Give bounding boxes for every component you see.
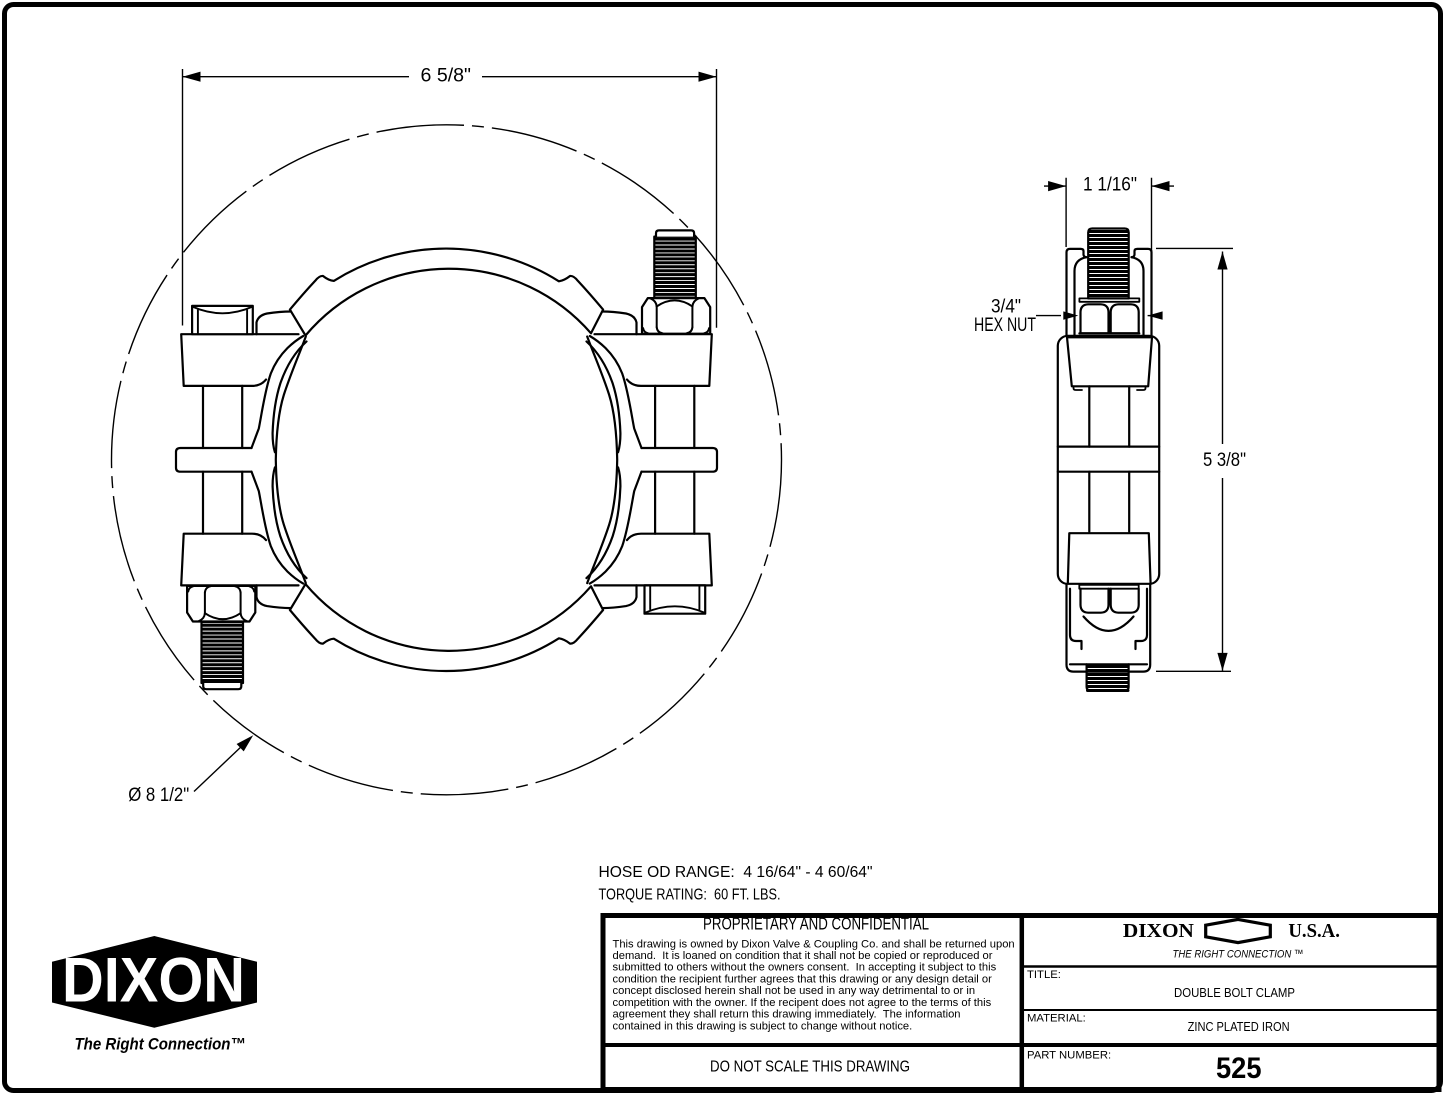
svg-text:DO NOT SCALE THIS DRAWING: DO NOT SCALE THIS DRAWING [710, 1059, 910, 1076]
svg-text:PART NUMBER:: PART NUMBER: [1027, 1050, 1111, 1062]
svg-text:demand. It is loaned on condi: demand. It is loaned on condition that i… [613, 950, 993, 962]
svg-text:DOUBLE BOLT CLAMP: DOUBLE BOLT CLAMP [1174, 985, 1295, 1000]
svg-text:5 3/8": 5 3/8" [1203, 450, 1246, 471]
svg-text:submitted to others without th: submitted to others without the owners c… [613, 962, 997, 974]
svg-text:DIXON: DIXON [62, 946, 245, 1016]
svg-text:6 5/8": 6 5/8" [421, 66, 472, 87]
svg-text:1 1/16": 1 1/16" [1083, 175, 1137, 196]
svg-text:THE RIGHT CONNECTION ™: THE RIGHT CONNECTION ™ [1173, 949, 1304, 961]
svg-text:ZINC PLATED IRON: ZINC PLATED IRON [1188, 1019, 1290, 1034]
svg-text:TITLE:: TITLE: [1027, 969, 1061, 981]
svg-text:The Right Connection™: The Right Connection™ [75, 1036, 246, 1054]
svg-text:DIXON: DIXON [1123, 920, 1194, 942]
svg-text:agreement they shall return th: agreement they shall return this drawing… [613, 1009, 961, 1021]
svg-text:This drawing is owned by Dixon: This drawing is owned by Dixon Valve & C… [613, 938, 1015, 950]
svg-text:HOSE OD RANGE: 4 16/64" - 4 6: HOSE OD RANGE: 4 16/64" - 4 60/64" [599, 864, 873, 881]
svg-text:competition with the owner. If: competition with the owner. If the recip… [613, 997, 992, 1009]
svg-text:condition the recipient furthe: condition the recipient further agrees t… [613, 973, 993, 985]
svg-text:concept disclosed herein shall: concept disclosed herein shall not be us… [613, 985, 976, 997]
svg-text:HEX NUT: HEX NUT [974, 315, 1036, 336]
svg-text:contained in this drawing is s: contained in this drawing is subject to … [613, 1020, 913, 1032]
svg-text:PROPRIETARY AND CONFIDENTIAL: PROPRIETARY AND CONFIDENTIAL [703, 914, 929, 934]
svg-text:Ø 8 1/2": Ø 8 1/2" [128, 785, 189, 806]
svg-text:MATERIAL:: MATERIAL: [1027, 1013, 1086, 1025]
svg-text:U.S.A.: U.S.A. [1288, 920, 1340, 942]
svg-text:525: 525 [1216, 1052, 1262, 1085]
svg-text:TORQUE RATING: 60 FT. LBS.: TORQUE RATING: 60 FT. LBS. [599, 887, 781, 904]
